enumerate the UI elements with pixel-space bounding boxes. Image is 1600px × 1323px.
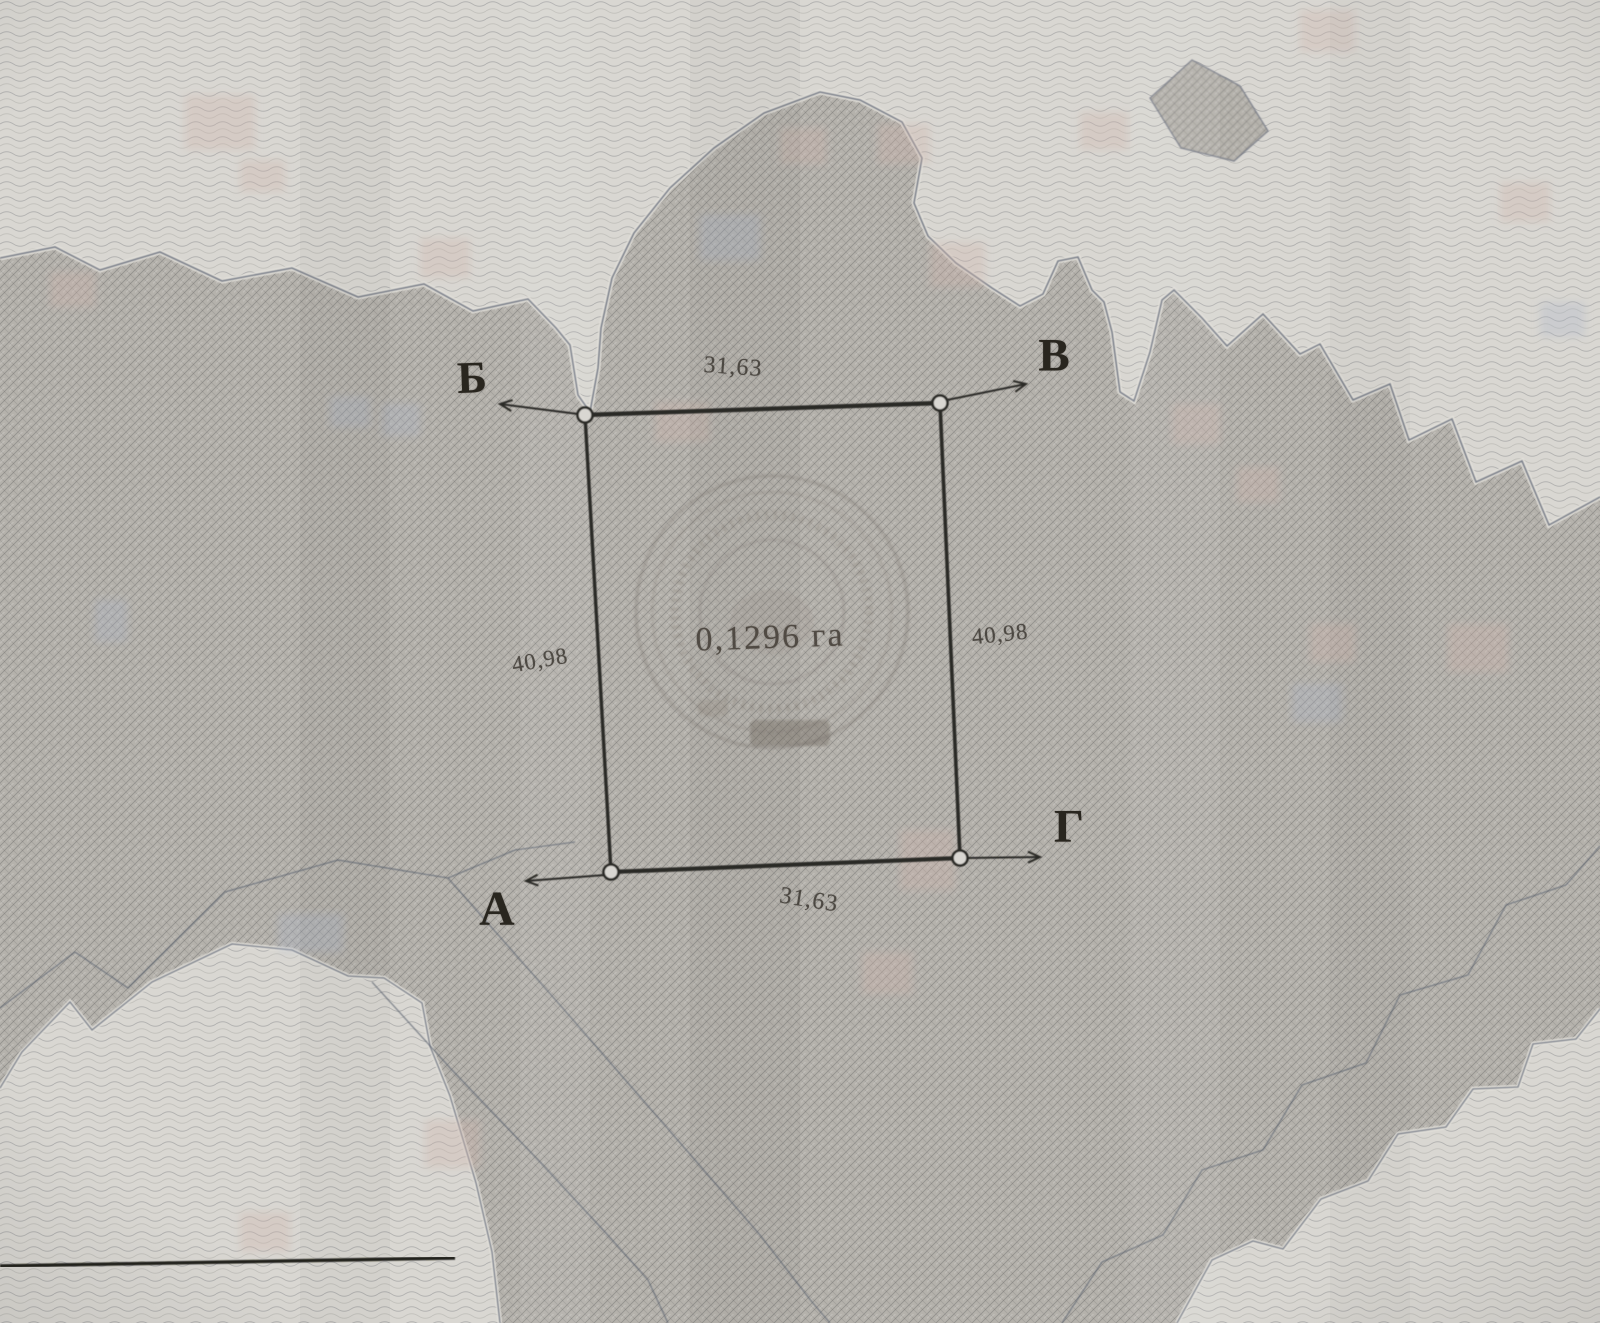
side-length-right: 40,98	[971, 620, 1030, 649]
area-label: 0,1296 га	[695, 618, 845, 657]
corner-label-a: А	[479, 884, 514, 933]
land-parcel-plan-scan: Б В А Г 31,63 31,63 40,98 40,98 0,1296 г…	[0, 0, 1600, 1323]
labels-overlay: Б В А Г 31,63 31,63 40,98 40,98 0,1296 г…	[0, 0, 1600, 1323]
side-length-bottom: 31,63	[778, 884, 840, 917]
corner-label-v: В	[1038, 333, 1069, 380]
corner-label-g: Г	[1054, 804, 1084, 851]
corner-label-b: Б	[456, 355, 487, 401]
side-length-left: 40,98	[510, 644, 570, 677]
side-length-top: 31,63	[703, 353, 764, 381]
